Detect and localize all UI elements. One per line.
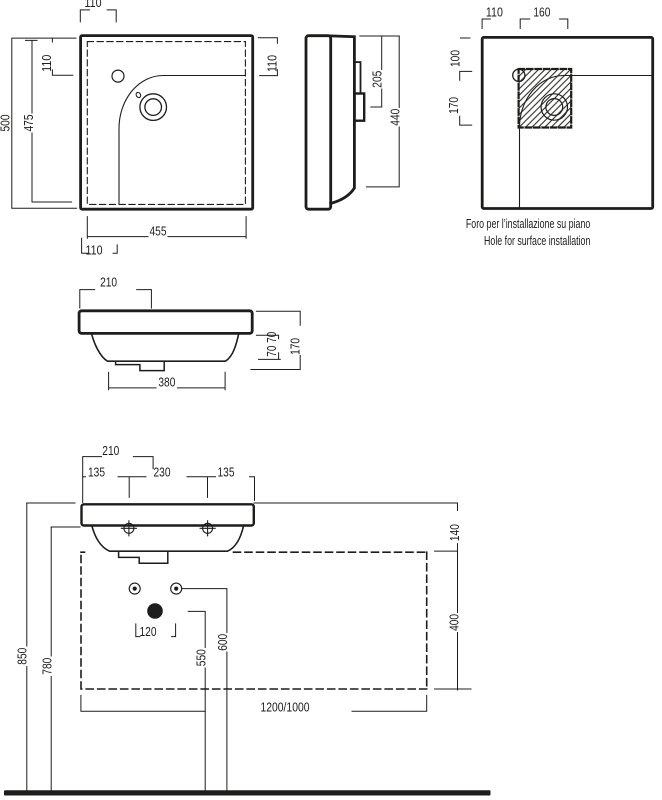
svg-text:210: 210 [102, 444, 119, 458]
svg-text:110: 110 [85, 0, 102, 10]
svg-text:Foro per l’installazione su pi: Foro per l’installazione su piano [466, 217, 590, 231]
svg-text:210: 210 [100, 276, 117, 290]
svg-text:110: 110 [486, 6, 503, 20]
svg-text:400: 400 [448, 614, 462, 631]
svg-text:205: 205 [371, 71, 385, 88]
svg-text:170: 170 [447, 97, 461, 114]
svg-text:550: 550 [194, 649, 208, 666]
svg-text:110: 110 [86, 243, 103, 257]
svg-text:500: 500 [0, 115, 13, 132]
svg-text:600: 600 [216, 634, 230, 651]
svg-text:230: 230 [154, 466, 171, 480]
svg-text:Hole for surface installation: Hole for surface installation [484, 234, 590, 248]
svg-text:140: 140 [448, 524, 462, 541]
svg-text:110: 110 [40, 55, 54, 72]
svg-text:70 70: 70 70 [265, 332, 279, 357]
svg-text:1200/1000: 1200/1000 [261, 701, 310, 715]
svg-text:135: 135 [218, 466, 235, 480]
svg-text:780: 780 [40, 658, 54, 675]
svg-text:110: 110 [265, 55, 279, 72]
svg-text:120: 120 [140, 625, 157, 639]
svg-text:440: 440 [388, 109, 402, 126]
svg-text:170: 170 [288, 338, 302, 355]
svg-text:475: 475 [22, 115, 36, 132]
svg-text:455: 455 [150, 225, 167, 239]
svg-text:135: 135 [88, 466, 105, 480]
svg-text:160: 160 [533, 6, 550, 20]
svg-text:380: 380 [158, 375, 175, 389]
svg-text:850: 850 [16, 648, 30, 665]
svg-text:100: 100 [449, 50, 463, 67]
